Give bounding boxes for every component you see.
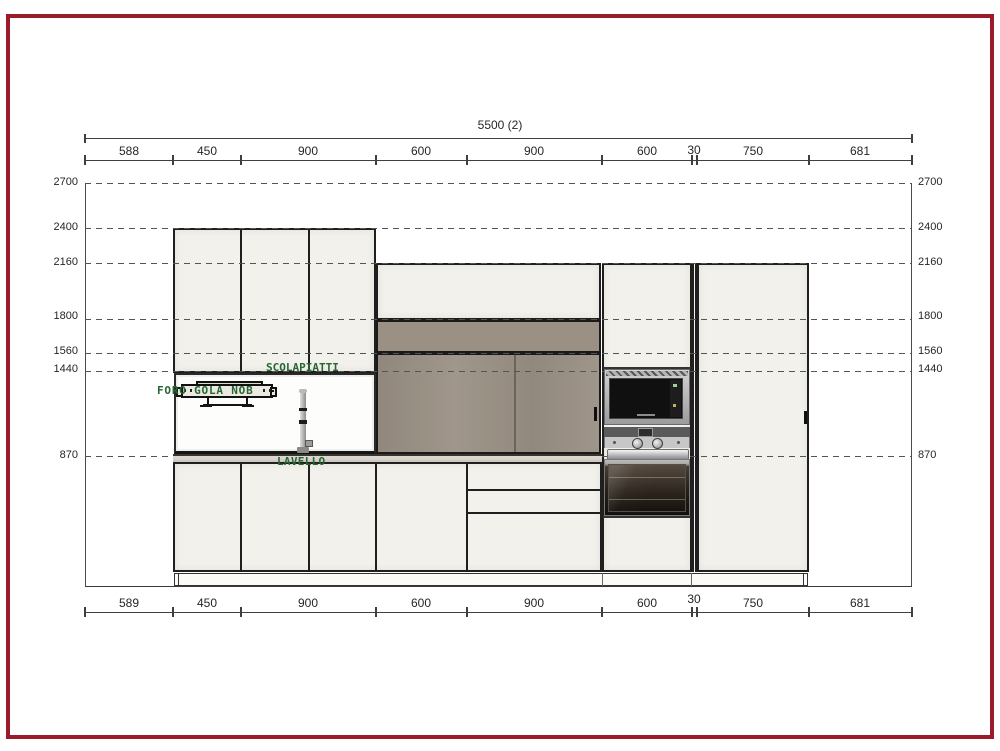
oven-bottom-seam [603,516,691,518]
height-label-2400-right: 2400 [918,221,966,233]
ref-line-1560 [85,353,912,354]
plinth-joint-line [691,573,692,586]
ref-line-1800 [85,319,912,320]
dim-tick [696,155,698,165]
bottom-dim-450: 450 [177,596,237,610]
top-dim-600a: 600 [391,144,451,158]
dim-tick [172,607,174,617]
dim-tick [601,155,603,165]
dim-tick [240,155,242,165]
bottom-dim-600a: 600 [391,596,451,610]
base-door-divider [308,462,310,572]
bottom-dim-750: 750 [723,596,783,610]
height-label-2700-left: 2700 [30,176,78,188]
microwave-display [673,384,677,387]
microwave-vent-grille [606,371,688,376]
bottom-dim-589: 589 [99,596,159,610]
sliding-door-handle [594,407,597,421]
faucet-cap [299,389,307,393]
base-door-divider [466,462,468,572]
dim-tick [911,607,913,617]
dish-rack-label: SCOLAPIATTI [266,361,339,374]
ref-line-1440 [85,371,912,372]
oven-display [638,428,653,437]
height-label-1560-right: 1560 [918,345,966,357]
top-dim-30: 30 [679,143,709,157]
height-label-2160-right: 2160 [918,256,966,268]
faucet-base [297,447,309,453]
dim-tick [84,134,86,143]
dim-tick [240,607,242,617]
dim-tick [375,155,377,165]
base-cabinet-run [173,462,602,572]
worktop [173,454,602,462]
sink-section-end-cap [270,387,277,397]
top-dim-900a: 900 [278,144,338,158]
oven-button [613,441,616,444]
tall-cabinet-handle [804,411,807,424]
microwave-button [673,404,676,407]
oven-knob [652,438,663,449]
plinth [174,573,808,586]
wall-flap-door-white [376,263,601,320]
sink-section-dot [272,390,274,392]
dim-tick [808,607,810,617]
left-wall-unit-door-divider [308,228,310,373]
top-dim-900b: 900 [504,144,564,158]
left-wall-unit-door-divider [240,228,242,373]
kitchen-elevation-drawing: 5500 (2) 588 450 900 600 900 600 30 750 … [0,0,1000,751]
bottom-dim-900b: 900 [504,596,564,610]
total-dimension-line [85,138,912,139]
oven-button [677,441,680,444]
sink-bracket-foot [200,405,212,407]
microwave-brand-mark [637,414,655,416]
height-label-1440-right: 1440 [918,363,966,375]
height-label-1560-left: 1560 [30,345,78,357]
height-label-1440-left: 1440 [30,363,78,375]
ref-line-2160 [85,263,912,264]
wood-sliding-doors [376,353,601,454]
height-label-1800-right: 1800 [918,310,966,322]
plinth-joint-line [602,573,603,586]
sink-bracket-foot [242,405,254,407]
height-label-2700-right: 2700 [918,176,966,188]
plinth-end-line [178,573,179,586]
height-label-870-right: 870 [918,449,966,461]
dim-tick [375,607,377,617]
dim-tick [691,155,693,165]
top-dim-681: 681 [830,144,890,158]
bottom-dim-681: 681 [830,596,890,610]
dim-tick [911,134,913,143]
bottom-segment-dimension-line [85,612,912,613]
ref-line-2400 [85,228,912,229]
sink-section-hatch [263,389,271,392]
top-segment-dimension-line [85,160,912,161]
left-wall-unit [173,228,376,373]
dim-tick [911,155,913,165]
faucet-spout [305,440,313,447]
left-wall-line [85,183,86,587]
base-door-divider [375,462,377,572]
top-dim-588: 588 [99,144,159,158]
floor-line [85,586,912,587]
right-wall-line [911,183,912,587]
dim-tick [601,607,603,617]
bottom-dim-900a: 900 [278,596,338,610]
base-door-divider [240,462,242,572]
bottom-dim-30: 30 [679,592,709,606]
dim-tick [808,155,810,165]
bottom-dim-600b: 600 [617,596,677,610]
dim-tick [466,607,468,617]
dim-tick [172,155,174,165]
oven-knob [632,438,643,449]
plinth-end-line [803,573,804,586]
dim-tick [84,607,86,617]
height-label-2160-left: 2160 [30,256,78,268]
sink-label: LAVELLO [277,455,325,468]
total-width-dimension: 5500 (2) [440,118,560,132]
faucet-band [299,420,307,424]
height-label-870-left: 870 [30,449,78,461]
height-label-2400-left: 2400 [30,221,78,233]
tap-hole-label: FORO GOLA NOB [157,384,254,397]
drawer-front-seam [468,489,601,491]
dim-tick [691,607,693,617]
dim-tick [696,607,698,617]
sliding-door-seam [514,355,516,452]
dim-tick [84,155,86,165]
tall-cabinet-right [697,263,809,572]
height-label-1800-left: 1800 [30,310,78,322]
top-dim-450: 450 [177,144,237,158]
drawer-front-seam [468,512,601,514]
faucet-band [299,408,307,411]
wall-flap-door-wood [376,320,601,353]
ref-line-2700 [85,183,912,184]
oven-glass-window [608,464,686,512]
dim-tick [466,155,468,165]
top-dim-600b: 600 [617,144,677,158]
top-dim-750: 750 [723,144,783,158]
